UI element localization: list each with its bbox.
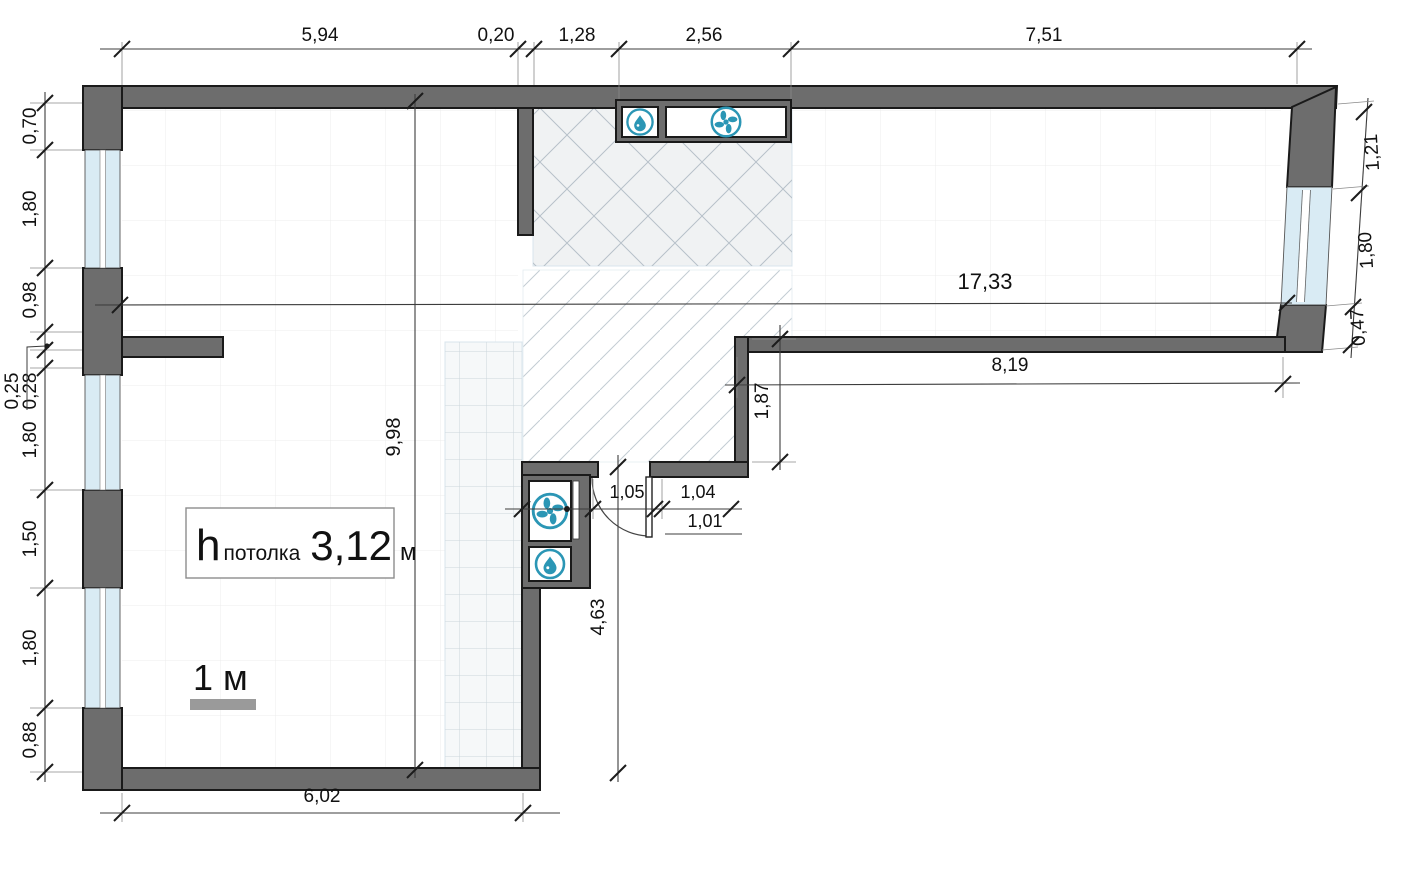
dim-label: 1,04 xyxy=(680,482,715,502)
dim-chain-left: 0,70 1,80 0,98 0,25 0,28 1,80 1,50 1,80 … xyxy=(2,92,82,782)
dim-label: 1,28 xyxy=(559,25,596,46)
dim-label: 4,63 xyxy=(588,599,609,636)
dim-label: 1,80 xyxy=(20,191,41,228)
shaft-door-leaf xyxy=(573,481,579,539)
dim-label: 0,70 xyxy=(20,108,41,145)
wing-bottom-wall xyxy=(735,337,1285,352)
hall-hatch-zone xyxy=(523,270,792,462)
scale-bar-rect xyxy=(190,699,256,710)
entry-partition-stub xyxy=(518,108,533,235)
ceiling-value: 3,12 xyxy=(310,522,392,569)
water-drop-icon xyxy=(536,550,564,578)
floor-plan-canvas: 5,94 0,20 1,28 2,56 7,51 0,70 1,80 0, xyxy=(0,0,1416,872)
dim-label: 0,88 xyxy=(20,722,41,759)
window-left-2 xyxy=(85,375,120,490)
dim-label: 2,56 xyxy=(686,25,723,46)
dim-label: 0,20 xyxy=(478,25,515,46)
dim-wing-width: 8,19 xyxy=(725,355,1300,398)
dim-label: 17,33 xyxy=(957,269,1012,294)
dim-chain-bottom: 6,02 xyxy=(100,786,560,822)
dim-label: 9,98 xyxy=(383,418,405,457)
door-wall-right xyxy=(650,462,748,477)
kitchen-tile-strip xyxy=(445,342,522,768)
dim-label: 1,80 xyxy=(20,630,41,667)
dim-label: 1,05 xyxy=(609,482,644,502)
dim-label: 7,51 xyxy=(1026,25,1063,46)
left-wall-top-corner xyxy=(83,86,122,150)
dim-label: 1,21 xyxy=(1361,133,1384,171)
dim-label: 5,94 xyxy=(302,25,339,46)
interior-wall-stub xyxy=(122,337,223,357)
ceiling-unit: м xyxy=(400,539,417,566)
ceiling-height-label: hпотолка3,12м xyxy=(186,508,417,578)
dim-label: 1,87 xyxy=(752,383,773,420)
fan-icon xyxy=(712,108,741,137)
dim-label: 1,01 xyxy=(687,511,722,531)
left-wall-pier-1 xyxy=(83,268,122,375)
dim-label: 0,47 xyxy=(1347,308,1370,346)
window-left-3 xyxy=(85,588,120,708)
ceiling-word: потолка xyxy=(223,542,300,565)
left-wall-bottom-corner xyxy=(83,708,122,790)
window-left-1 xyxy=(85,150,120,268)
fan-icon xyxy=(533,494,567,528)
water-drop-icon xyxy=(627,109,652,134)
dim-label: 1,80 xyxy=(1355,231,1378,269)
window-right xyxy=(1281,187,1332,305)
dim-label: 1,80 xyxy=(20,422,41,459)
door-leaf xyxy=(646,477,652,537)
scale-bar: 1 м xyxy=(190,657,256,710)
left-wall-pier-2 xyxy=(83,490,122,588)
ceiling-h: h xyxy=(196,521,220,570)
floor-finishes xyxy=(122,108,1281,768)
dim-label: 0,28 xyxy=(20,373,41,410)
dim-dot xyxy=(564,506,570,512)
scale-label: 1 м xyxy=(193,657,248,698)
dim-label: 0,98 xyxy=(20,282,41,319)
dim-corridor-depth: 4,63 xyxy=(588,455,626,782)
dim-label: 8,19 xyxy=(992,355,1029,376)
floor-plan-page: 5,94 0,20 1,28 2,56 7,51 0,70 1,80 0, xyxy=(0,0,1416,872)
dim-label: 1,50 xyxy=(20,521,41,558)
lower-partition-wall xyxy=(522,588,540,790)
dim-label: 6,02 xyxy=(304,786,341,807)
